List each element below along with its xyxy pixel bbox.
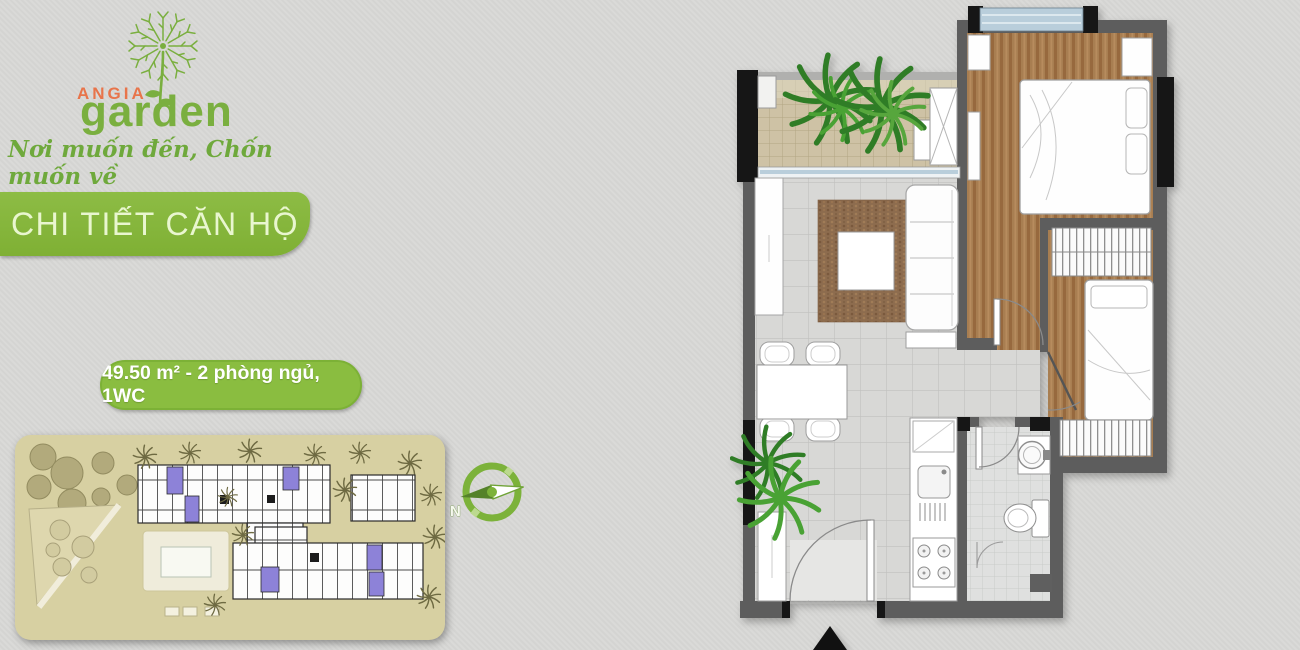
- siteplan-pool: [143, 531, 229, 591]
- coffee-table: [838, 232, 894, 290]
- unit-area-text: 49.50 m² - 2 phòng ngủ, 1WC: [102, 362, 360, 408]
- dining-table: [757, 365, 847, 419]
- master-window: [980, 8, 1083, 31]
- entry-door-leaf: [867, 520, 874, 601]
- pillow: [1091, 286, 1147, 308]
- balcony-sliding-door: [758, 167, 960, 178]
- kitchen-counter: [910, 418, 957, 601]
- brand-subname: garden: [80, 90, 233, 134]
- section-banner: CHI TIẾT CĂN HỘ: [0, 192, 310, 256]
- pillow: [1126, 134, 1147, 174]
- basin: [1019, 442, 1046, 469]
- compass-north-icon: N: [448, 450, 532, 534]
- hallway-floor: [955, 350, 1040, 417]
- north-triangle-icon: [813, 626, 847, 650]
- pillow: [1126, 88, 1147, 128]
- entry-mat: [790, 540, 877, 600]
- north-label: N: [450, 503, 461, 520]
- brand-tagline: Nơi muốn đến, Chốn muốn về: [8, 136, 308, 190]
- wardrobe: [1060, 420, 1151, 456]
- nightstand: [1122, 38, 1152, 76]
- apartment-floor-plan: [730, 0, 1200, 650]
- stove: [913, 538, 955, 587]
- tv-panel: [968, 112, 980, 180]
- site-plan-thumbnail: [15, 435, 445, 640]
- brochure-page: ANGIA garden Nơi muốn đến, Chốn muốn về …: [0, 0, 1300, 650]
- side-table: [906, 332, 956, 348]
- sofa: [906, 185, 958, 330]
- bathroom-door-leaf: [976, 427, 982, 469]
- siteplan-clubhouse: [351, 475, 415, 521]
- unit-area-pill: 49.50 m² - 2 phòng ngủ, 1WC: [100, 360, 362, 410]
- section-title: CHI TIẾT CĂN HỘ: [11, 206, 299, 243]
